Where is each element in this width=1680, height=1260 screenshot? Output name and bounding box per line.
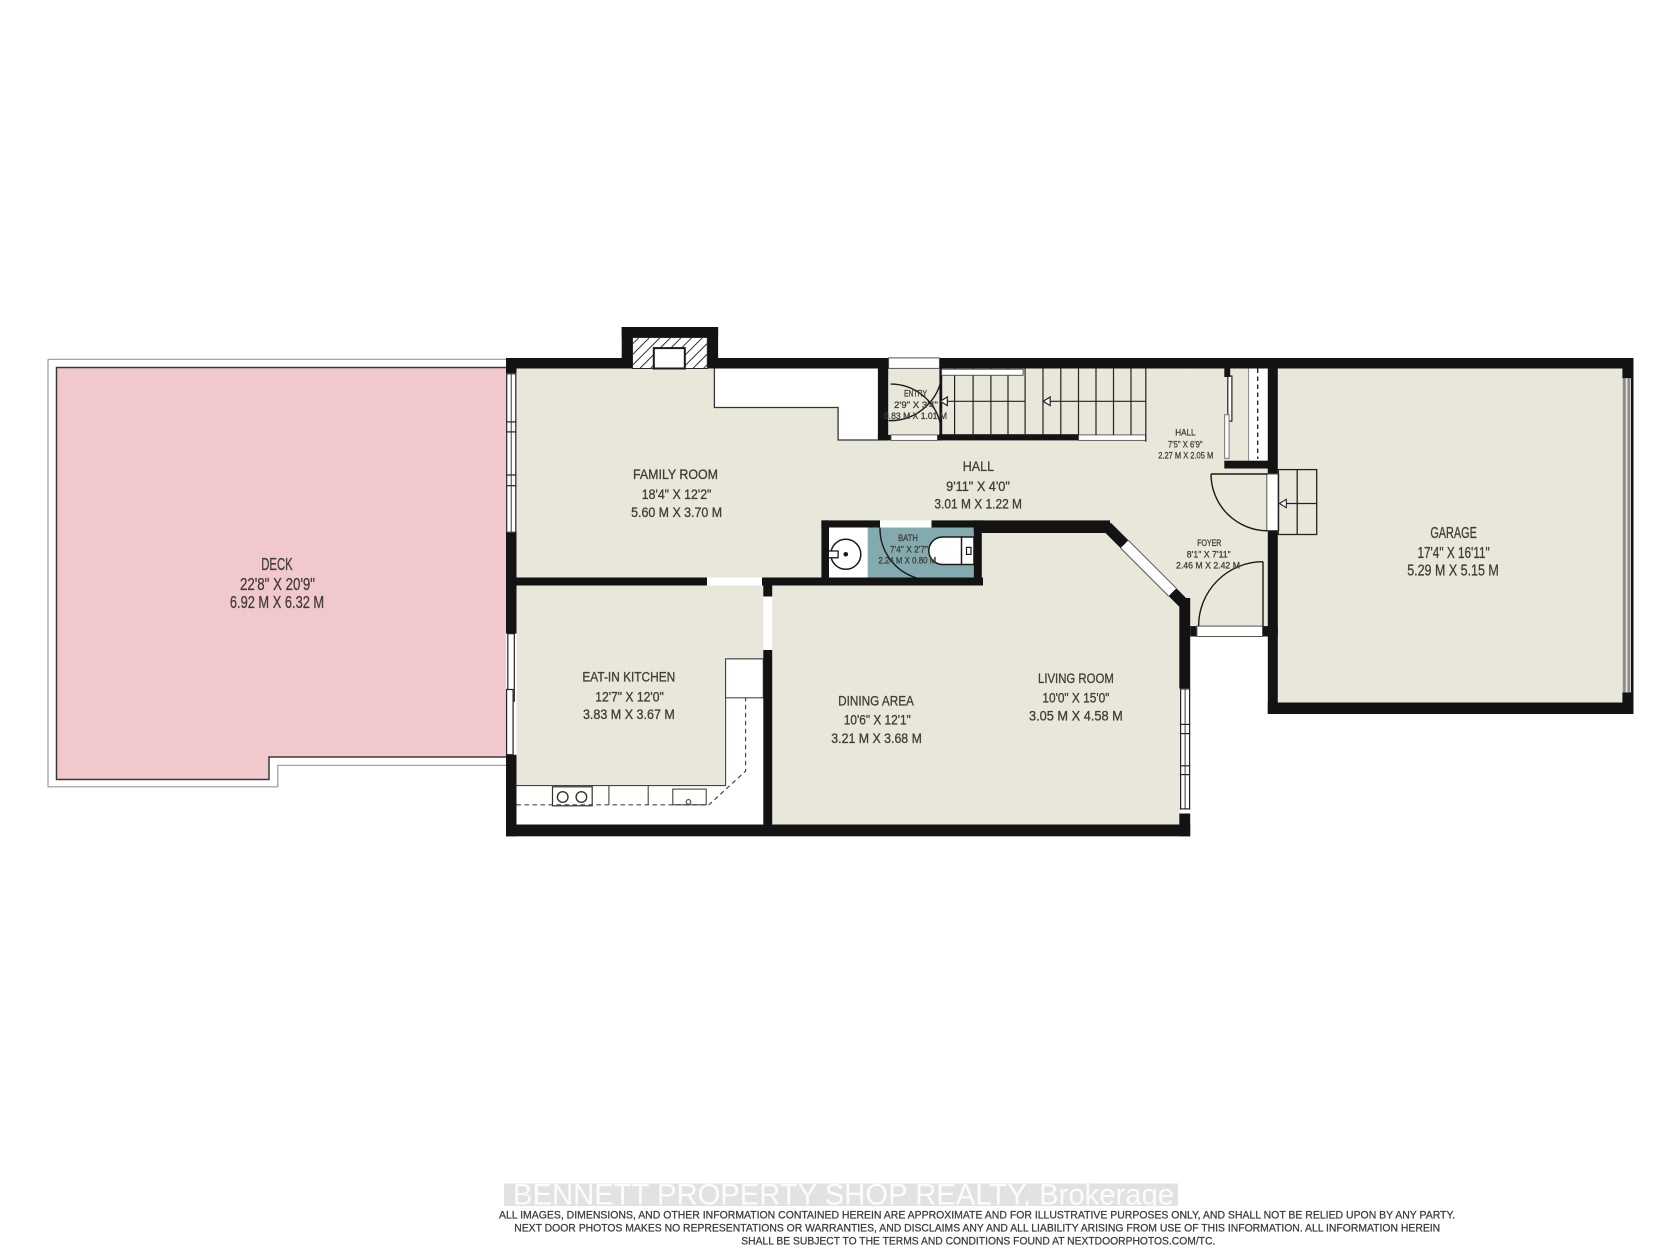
svg-text:7'4" X 2'7": 7'4" X 2'7"	[890, 544, 928, 555]
svg-text:6.92 M X 6.32 M: 6.92 M X 6.32 M	[230, 592, 324, 612]
svg-text:ENTRY: ENTRY	[904, 389, 927, 400]
svg-text:22'8" X 20'9": 22'8" X 20'9"	[240, 574, 315, 594]
svg-text:HALL: HALL	[963, 459, 994, 474]
svg-text:5.29 M X 5.15 M: 5.29 M X 5.15 M	[1407, 562, 1499, 579]
svg-text:18'4" X 12'2": 18'4" X 12'2"	[642, 487, 712, 502]
svg-text:FOYER: FOYER	[1197, 538, 1221, 549]
svg-text:2'9" X 3'4": 2'9" X 3'4"	[894, 400, 938, 411]
svg-text:3.83 M X 3.67 M: 3.83 M X 3.67 M	[583, 707, 675, 722]
svg-text:2.27 M X 2.05 M: 2.27 M X 2.05 M	[1158, 451, 1213, 462]
svg-text:17'4" X 16'11": 17'4" X 16'11"	[1417, 545, 1489, 562]
svg-text:EAT-IN KITCHEN: EAT-IN KITCHEN	[582, 670, 675, 685]
svg-text:9'11" X 4'0": 9'11" X 4'0"	[946, 479, 1010, 494]
svg-text:10'0" X 15'0": 10'0" X 15'0"	[1042, 691, 1109, 706]
svg-text:3.21 M X 3.68 M: 3.21 M X 3.68 M	[831, 731, 922, 746]
svg-text:BENNETT PROPERTY SHOP REALTY,: BENNETT PROPERTY SHOP REALTY, Brokerage	[513, 1179, 1174, 1212]
svg-text:2.46 M X 2.42 M: 2.46 M X 2.42 M	[1176, 560, 1240, 571]
svg-text:7'5" X 6'9": 7'5" X 6'9"	[1168, 440, 1203, 451]
svg-text:BATH: BATH	[898, 533, 918, 544]
svg-text:8'1" X 7'11": 8'1" X 7'11"	[1187, 549, 1231, 560]
svg-text:12'7" X 12'0": 12'7" X 12'0"	[595, 689, 664, 704]
svg-text:2.24 M X 0.80 M: 2.24 M X 0.80 M	[878, 556, 936, 567]
svg-text:HALL: HALL	[1175, 427, 1195, 438]
svg-text:FAMILY ROOM: FAMILY ROOM	[633, 467, 718, 482]
svg-text:3.05 M X 4.58 M: 3.05 M X 4.58 M	[1029, 709, 1123, 724]
svg-text:3.01 M X 1.22 M: 3.01 M X 1.22 M	[934, 497, 1022, 512]
svg-text:LIVING ROOM: LIVING ROOM	[1038, 671, 1114, 686]
svg-text:0.83 M X 1.01 M: 0.83 M X 1.01 M	[884, 411, 947, 422]
svg-text:DECK: DECK	[261, 554, 293, 574]
svg-text:GARAGE: GARAGE	[1430, 525, 1477, 542]
svg-text:DINING AREA: DINING AREA	[838, 694, 914, 709]
svg-text:NEXT DOOR PHOTOS MAKES NO REPR: NEXT DOOR PHOTOS MAKES NO REPRESENTATION…	[514, 1223, 1440, 1235]
svg-text:ALL IMAGES, DIMENSIONS, AND OT: ALL IMAGES, DIMENSIONS, AND OTHER INFORM…	[499, 1210, 1455, 1222]
svg-text:5.60 M X 3.70 M: 5.60 M X 3.70 M	[631, 505, 722, 520]
svg-text:10'6" X 12'1": 10'6" X 12'1"	[844, 713, 911, 728]
svg-text:SHALL BE SUBJECT TO THE TERMS: SHALL BE SUBJECT TO THE TERMS AND CONDIT…	[741, 1236, 1215, 1248]
